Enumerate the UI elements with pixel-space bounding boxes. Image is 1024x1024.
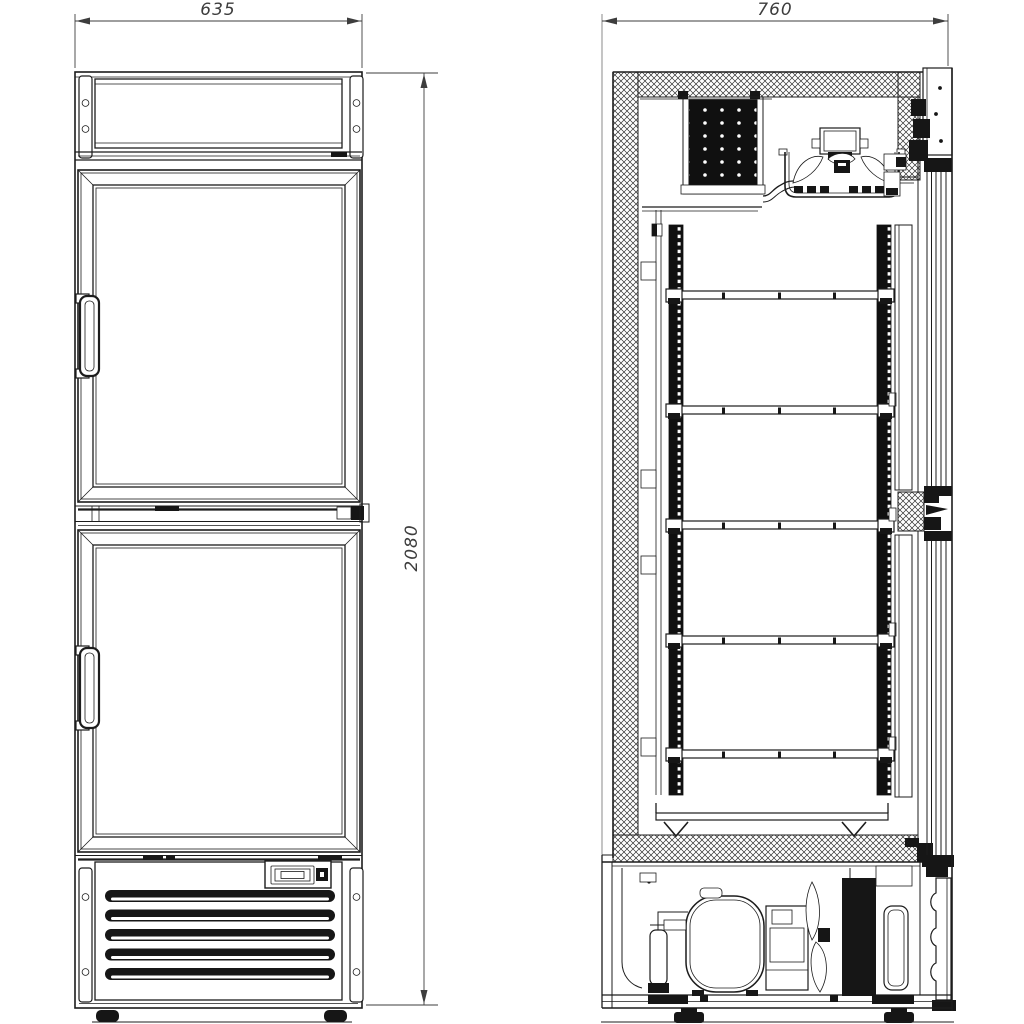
louver-slat xyxy=(105,890,335,902)
insulation-left-wall xyxy=(613,72,638,858)
mounting-hole xyxy=(353,126,360,133)
shelf xyxy=(666,634,894,649)
header-side-plate-right xyxy=(350,76,363,158)
dim-overall-height: 2080 xyxy=(366,73,438,1005)
lower-door-glass xyxy=(927,541,946,855)
mounting-hole xyxy=(82,894,89,901)
door-hinge-bottom xyxy=(922,855,954,867)
shelf-support xyxy=(842,822,866,836)
grille-side-plate-right xyxy=(350,868,363,1002)
door-hinge-middle xyxy=(898,492,924,531)
dim-arrow-left xyxy=(603,18,617,25)
liner-clamp xyxy=(641,556,656,574)
upper-door-inner-glass xyxy=(895,225,912,490)
bottom-divider-band xyxy=(75,855,362,860)
mounting-hole xyxy=(353,969,360,976)
dim-arrow-top xyxy=(421,74,428,88)
lower-door-top-cap xyxy=(924,531,952,541)
shelf xyxy=(666,748,894,763)
liner-clamp xyxy=(641,470,656,488)
side-section-view: 760 xyxy=(601,0,956,1023)
condenser xyxy=(842,878,876,996)
base-mount xyxy=(872,995,914,1004)
grille-side-plate-left xyxy=(79,868,92,1002)
insulation-floor xyxy=(613,835,918,862)
filter-drier xyxy=(650,930,667,985)
door-handle-lower xyxy=(76,646,99,730)
dim-arrow-left xyxy=(76,18,90,25)
air-duct xyxy=(642,177,918,795)
shelf-front-stop xyxy=(889,508,896,521)
mounting-hole xyxy=(353,100,360,107)
dim-depth: 760 xyxy=(602,0,948,855)
mounting-hole xyxy=(82,100,89,107)
header-side-plate-left xyxy=(79,76,92,158)
liner-clamp xyxy=(641,738,656,756)
louver-slat xyxy=(105,910,335,922)
upper-glass-door xyxy=(78,170,360,502)
refrigerated-cabinet-drawing: 635 2080 xyxy=(0,0,1024,1024)
leveling-foot xyxy=(674,1008,704,1023)
center-mullion xyxy=(75,504,369,526)
compressor xyxy=(686,896,764,992)
evaporator xyxy=(640,91,772,194)
fan-hub xyxy=(834,160,850,173)
louver-slat xyxy=(105,968,335,980)
condenser-fan-blade xyxy=(811,942,826,992)
mounting-hole xyxy=(353,894,360,901)
shelf xyxy=(666,289,894,304)
louver-slat xyxy=(105,929,335,941)
liner-clamp xyxy=(641,262,656,280)
shelf-support xyxy=(664,822,688,836)
dim-label-overall-height: 2080 xyxy=(402,524,422,571)
door-handle-upper xyxy=(76,294,99,378)
machine-compartment xyxy=(602,855,952,1008)
leveling-foot xyxy=(324,1010,347,1022)
shelf-rail-rear xyxy=(669,225,683,795)
fan-motor xyxy=(820,128,860,154)
dim-arrow-bottom xyxy=(421,990,428,1004)
louver-slat xyxy=(105,949,335,961)
evaporator-coil xyxy=(689,100,757,185)
mounting-hole xyxy=(82,969,89,976)
lower-glass-door xyxy=(78,530,360,852)
upper-door-glass xyxy=(927,172,946,488)
lower-door-inner-glass xyxy=(895,535,912,797)
insulation-top xyxy=(613,72,920,97)
wiring xyxy=(622,868,642,988)
fan-blade xyxy=(793,156,823,183)
front-view: 635 2080 xyxy=(75,0,438,1022)
condenser-fan-hub xyxy=(818,928,830,942)
mounting-hole xyxy=(82,126,89,133)
leveling-foot xyxy=(884,1008,914,1023)
bottom-shelf xyxy=(656,803,888,836)
dim-label-front-width: 635 xyxy=(200,0,235,20)
shelf xyxy=(666,519,894,534)
leveling-foot xyxy=(96,1010,119,1022)
dim-arrow-right xyxy=(347,18,361,25)
dim-arrow-right xyxy=(933,18,947,25)
base-mount xyxy=(648,995,688,1004)
dim-label-depth: 760 xyxy=(757,0,792,20)
dim-front-width: 635 xyxy=(75,0,362,68)
mullion-lock xyxy=(155,506,179,511)
shelf xyxy=(666,404,894,419)
ventilation-grille xyxy=(79,861,363,1004)
door-kick-panel xyxy=(931,878,951,1000)
door-hinge-top xyxy=(911,99,926,116)
evaporator-drip-tray xyxy=(681,185,765,194)
temperature-controller xyxy=(265,861,331,888)
header-lightbox xyxy=(75,76,363,160)
technical-drawing-page: 635 2080 xyxy=(0,0,1024,1024)
upper-door-top-cap xyxy=(924,158,952,172)
